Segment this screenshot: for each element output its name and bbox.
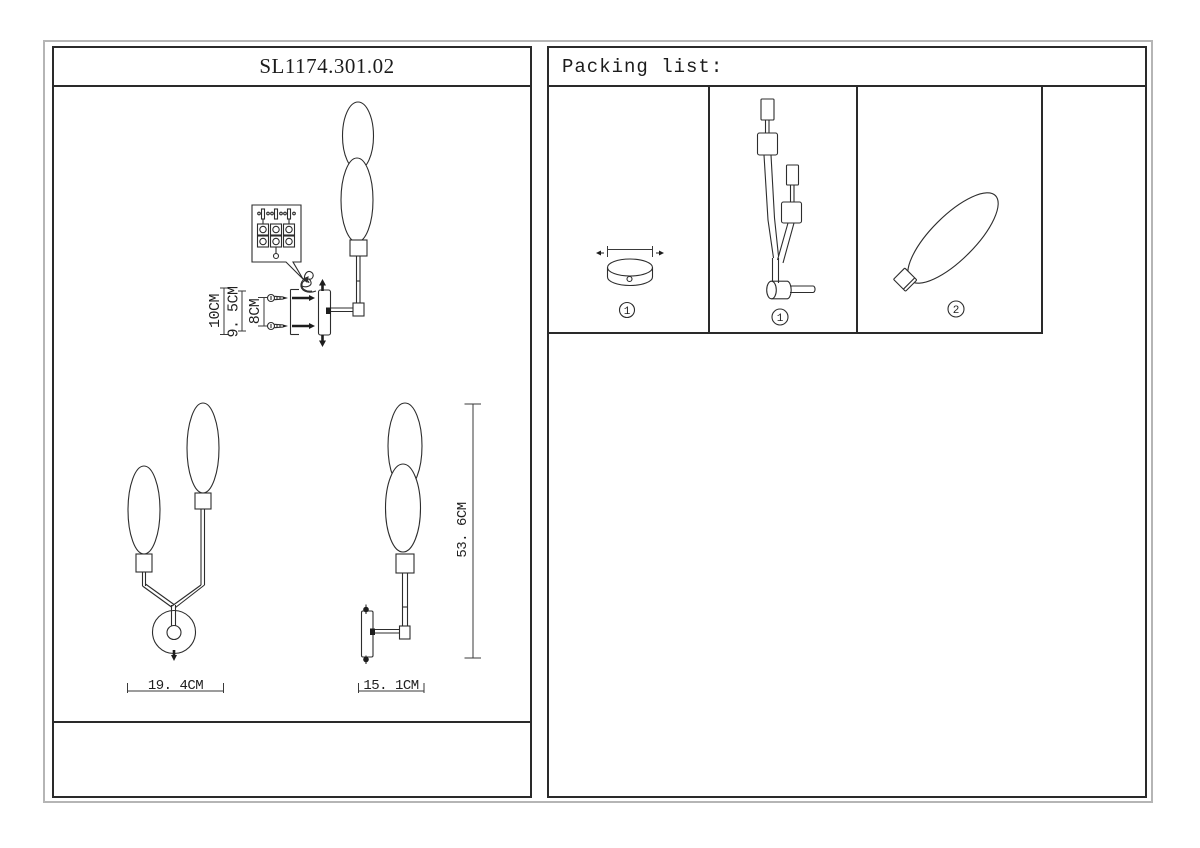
title-bar: SL1174.301.02 bbox=[54, 48, 530, 87]
packing-table bbox=[549, 85, 1043, 334]
table-divider bbox=[708, 85, 710, 332]
packing-panel: Packing list: bbox=[547, 46, 1147, 798]
footer-divider bbox=[54, 721, 530, 723]
table-divider bbox=[856, 85, 858, 332]
drawing-panel: SL1174.301.02 bbox=[52, 46, 532, 798]
packing-list-label: Packing list: bbox=[549, 56, 723, 78]
model-number: SL1174.301.02 bbox=[189, 54, 394, 79]
packing-list-header: Packing list: bbox=[549, 48, 1145, 87]
